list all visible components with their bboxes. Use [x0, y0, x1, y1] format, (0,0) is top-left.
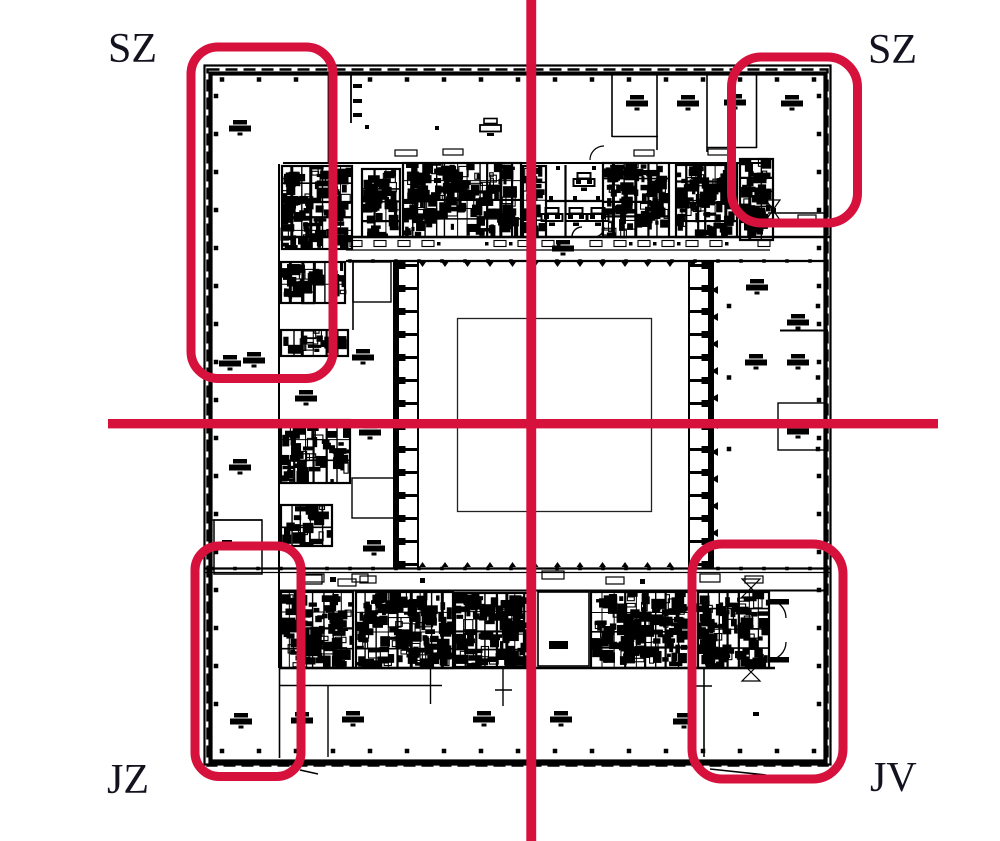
- svg-text:JZ: JZ: [107, 757, 149, 803]
- svg-text:SZ: SZ: [108, 26, 157, 72]
- svg-text:SZ: SZ: [868, 27, 917, 73]
- svg-text:JV: JV: [870, 755, 917, 801]
